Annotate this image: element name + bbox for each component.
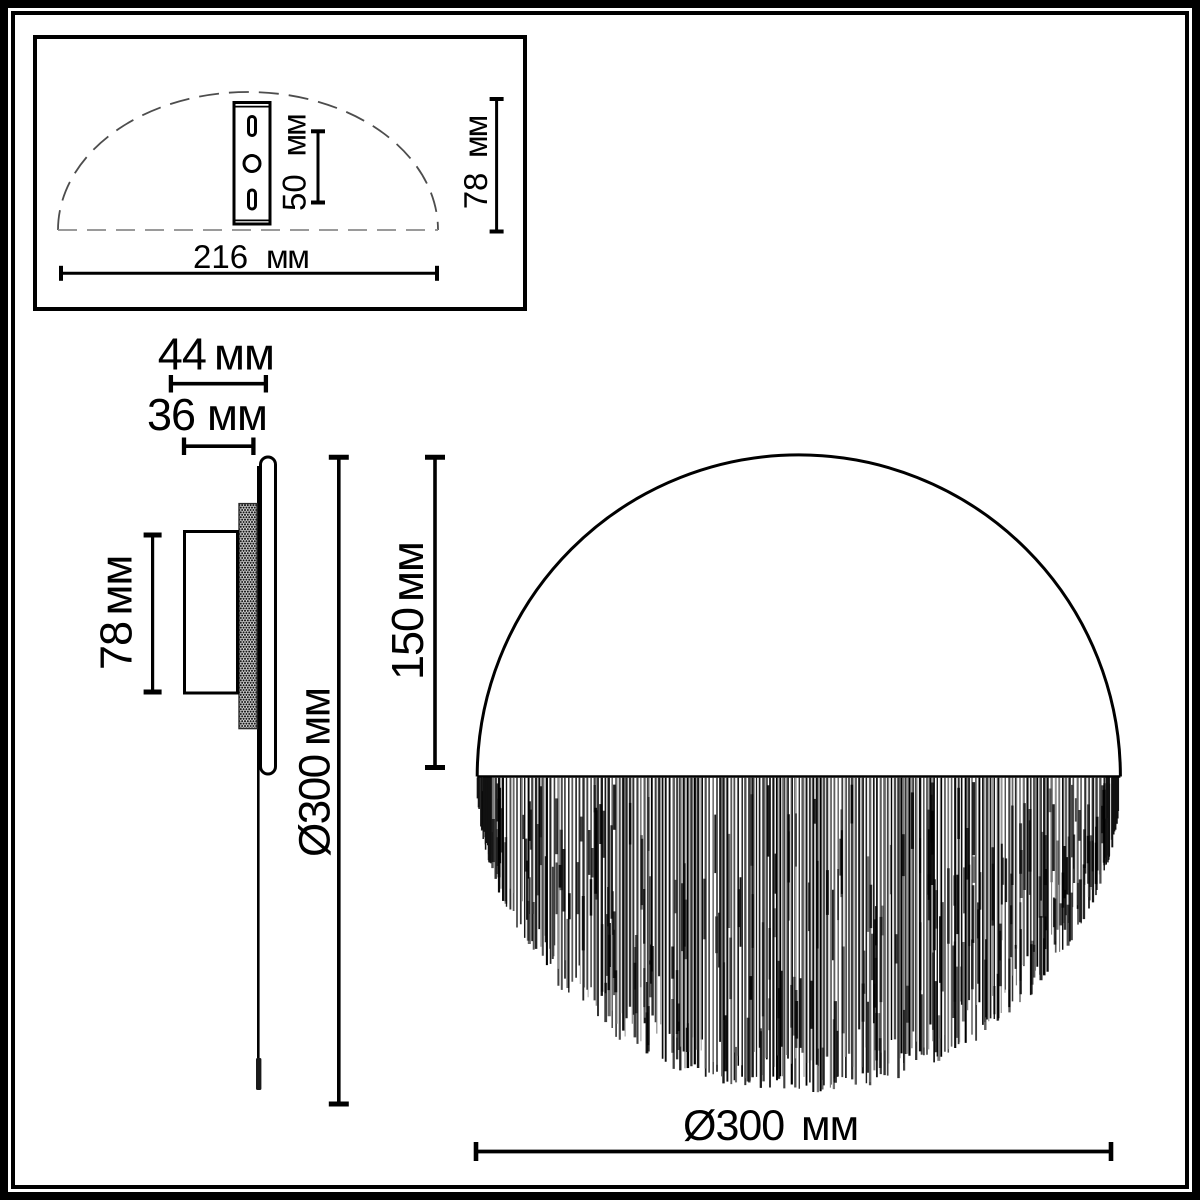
svg-text:Ø300: Ø300 bbox=[683, 1102, 784, 1150]
svg-text:216: 216 bbox=[193, 238, 248, 275]
svg-text:мм: мм bbox=[457, 116, 494, 158]
svg-text:150: 150 bbox=[382, 608, 433, 680]
svg-text:78: 78 bbox=[457, 173, 494, 210]
svg-text:мм: мм bbox=[207, 389, 267, 440]
svg-text:Ø300: Ø300 bbox=[291, 755, 340, 857]
svg-text:мм: мм bbox=[801, 1102, 858, 1150]
svg-text:мм: мм bbox=[382, 542, 433, 602]
svg-text:50: 50 bbox=[276, 174, 313, 211]
svg-text:мм: мм bbox=[276, 115, 313, 157]
svg-text:44: 44 bbox=[158, 328, 206, 379]
svg-text:36: 36 bbox=[147, 389, 195, 440]
svg-text:мм: мм bbox=[266, 238, 308, 275]
svg-text:мм: мм bbox=[291, 689, 340, 747]
svg-text:78: 78 bbox=[91, 622, 142, 670]
svg-text:мм: мм bbox=[214, 328, 274, 379]
svg-text:мм: мм bbox=[91, 556, 142, 616]
